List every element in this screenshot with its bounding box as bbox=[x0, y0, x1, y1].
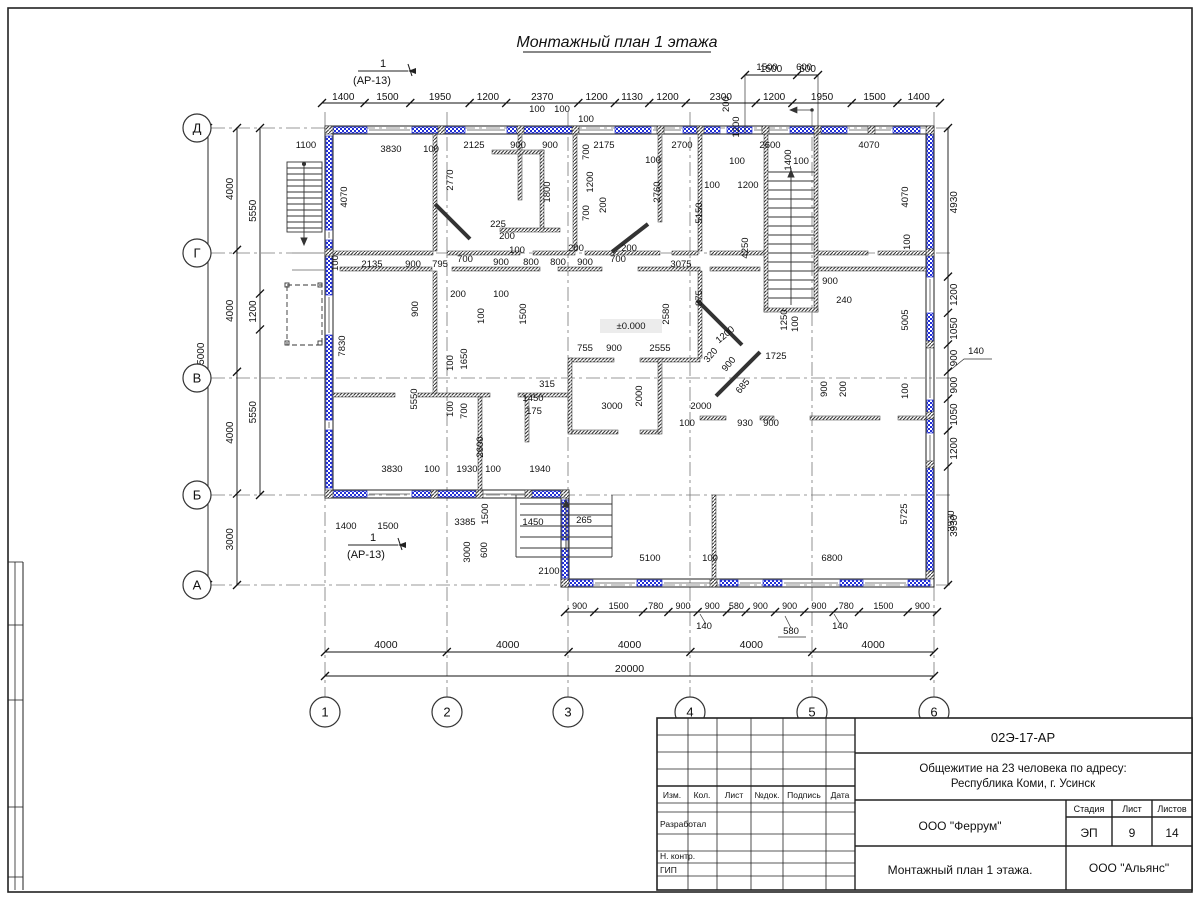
svg-text:200: 200 bbox=[621, 243, 637, 254]
svg-text:900: 900 bbox=[705, 601, 720, 611]
svg-text:1200: 1200 bbox=[763, 92, 786, 103]
svg-text:700: 700 bbox=[459, 403, 470, 419]
svg-text:2100: 2100 bbox=[538, 566, 559, 577]
svg-text:Г: Г bbox=[193, 246, 200, 261]
axis-bubbles: ДГВБА123456 bbox=[183, 114, 949, 727]
svg-text:1100: 1100 bbox=[296, 140, 316, 151]
svg-text:875: 875 bbox=[694, 290, 705, 306]
drawing-name: Монтажный план 1 этажа. bbox=[888, 863, 1033, 877]
tb-row-label: Разработал bbox=[660, 819, 706, 829]
svg-text:900: 900 bbox=[819, 381, 830, 397]
dimension-chains: 1400150019501200237012001130120023001200… bbox=[196, 64, 960, 680]
svg-text:4930: 4930 bbox=[949, 191, 960, 214]
svg-text:4000: 4000 bbox=[225, 299, 236, 322]
tb-col-header: Кол. bbox=[694, 790, 711, 800]
svg-text:1400: 1400 bbox=[332, 92, 355, 103]
svg-text:685: 685 bbox=[734, 377, 753, 396]
section-marker-top: 1 (АР-13) bbox=[353, 58, 416, 87]
svg-text:700: 700 bbox=[581, 144, 592, 160]
doc-number: 02Э-17-АР bbox=[991, 730, 1055, 745]
svg-text:100: 100 bbox=[645, 155, 661, 166]
svg-text:1500: 1500 bbox=[376, 92, 399, 103]
svg-text:900: 900 bbox=[822, 276, 838, 287]
svg-text:140: 140 bbox=[832, 621, 848, 632]
tb-col-header: №док. bbox=[755, 790, 780, 800]
svg-text:600: 600 bbox=[479, 542, 490, 558]
svg-text:1650: 1650 bbox=[459, 348, 470, 369]
drawing-sheet: 1 (АР-13) 1 (АР-13) 14001500195012002370… bbox=[0, 0, 1200, 900]
svg-text:3385: 3385 bbox=[454, 517, 475, 528]
sheets-label: Листов bbox=[1157, 804, 1186, 814]
svg-text:Д: Д bbox=[193, 121, 202, 136]
svg-text:580: 580 bbox=[783, 626, 799, 637]
tb-row-label: ГИП bbox=[660, 865, 677, 875]
svg-text:2600: 2600 bbox=[759, 140, 780, 151]
svg-text:100: 100 bbox=[578, 114, 594, 125]
svg-text:900: 900 bbox=[510, 140, 526, 151]
svg-text:900: 900 bbox=[493, 257, 509, 268]
svg-text:100: 100 bbox=[330, 255, 341, 271]
svg-text:175: 175 bbox=[526, 406, 542, 417]
svg-text:1500: 1500 bbox=[609, 601, 629, 611]
svg-text:200: 200 bbox=[499, 231, 515, 242]
svg-text:Б: Б bbox=[193, 488, 202, 503]
svg-text:100: 100 bbox=[793, 156, 809, 167]
svg-text:3830: 3830 bbox=[380, 144, 401, 155]
svg-text:100: 100 bbox=[554, 104, 570, 115]
svg-text:3830: 3830 bbox=[381, 464, 402, 475]
svg-text:320: 320 bbox=[702, 346, 721, 365]
svg-text:900: 900 bbox=[676, 601, 691, 611]
svg-text:4000: 4000 bbox=[740, 639, 764, 651]
stair-external-left bbox=[285, 162, 325, 345]
svg-text:700: 700 bbox=[610, 254, 626, 265]
svg-text:1500: 1500 bbox=[756, 62, 777, 73]
sheets-total: 14 bbox=[1165, 826, 1179, 840]
wall-panels bbox=[326, 127, 933, 586]
stair-main-right bbox=[768, 168, 814, 305]
svg-text:6800: 6800 bbox=[821, 553, 842, 564]
svg-text:2000: 2000 bbox=[634, 385, 645, 406]
svg-text:100: 100 bbox=[445, 355, 456, 371]
svg-text:780: 780 bbox=[839, 601, 854, 611]
diagonal-walls bbox=[435, 204, 760, 396]
svg-text:800: 800 bbox=[523, 257, 539, 268]
svg-text:4000: 4000 bbox=[374, 639, 398, 651]
svg-text:200: 200 bbox=[838, 381, 849, 397]
svg-text:В: В bbox=[193, 371, 202, 386]
svg-text:А: А bbox=[193, 578, 202, 593]
svg-text:755: 755 bbox=[577, 343, 593, 354]
svg-text:265: 265 bbox=[576, 515, 592, 526]
svg-text:100: 100 bbox=[679, 418, 695, 429]
contractor-org: ООО "Альянс" bbox=[1089, 861, 1169, 875]
svg-text:1200: 1200 bbox=[949, 283, 960, 306]
tb-col-header: Лист bbox=[725, 790, 744, 800]
svg-text:5005: 5005 bbox=[900, 309, 911, 330]
svg-text:1400: 1400 bbox=[335, 521, 356, 532]
tb-col-header: Изм. bbox=[663, 790, 681, 800]
designer-org: ООО "Феррум" bbox=[919, 819, 1002, 833]
svg-text:3000: 3000 bbox=[462, 541, 473, 562]
tb-row-label: Н. контр. bbox=[660, 851, 695, 861]
svg-text:2580: 2580 bbox=[661, 303, 672, 324]
svg-text:200: 200 bbox=[721, 96, 732, 112]
svg-text:100: 100 bbox=[900, 383, 911, 399]
svg-text:900: 900 bbox=[763, 418, 779, 429]
svg-text:100: 100 bbox=[790, 316, 801, 332]
svg-text:2: 2 bbox=[443, 705, 450, 720]
svg-text:1500: 1500 bbox=[518, 303, 529, 324]
page-title: Монтажный план 1 этажа bbox=[516, 34, 717, 51]
svg-text:2760: 2760 bbox=[652, 181, 663, 202]
svg-text:900: 900 bbox=[405, 259, 421, 270]
section-marker-bottom: 1 (АР-13) bbox=[347, 532, 406, 561]
svg-text:4070: 4070 bbox=[858, 140, 879, 151]
svg-text:900: 900 bbox=[782, 601, 797, 611]
tb-col-header: Подпись bbox=[787, 790, 821, 800]
svg-text:2770: 2770 bbox=[445, 169, 456, 190]
project-name-line1: Общежитие на 23 человека по адресу: bbox=[919, 763, 1126, 775]
project-name-line2: Республика Коми, г. Усинск bbox=[951, 778, 1096, 790]
svg-text:2600: 2600 bbox=[475, 436, 486, 457]
svg-text:200: 200 bbox=[568, 243, 584, 254]
tb-col-header: Дата bbox=[831, 790, 850, 800]
svg-text:1930: 1930 bbox=[456, 464, 477, 475]
svg-text:4000: 4000 bbox=[225, 421, 236, 444]
svg-text:900: 900 bbox=[572, 601, 587, 611]
svg-text:240: 240 bbox=[836, 295, 852, 306]
svg-text:315: 315 bbox=[539, 379, 555, 390]
svg-text:100: 100 bbox=[445, 401, 456, 417]
svg-text:1400: 1400 bbox=[908, 92, 931, 103]
svg-text:1200: 1200 bbox=[585, 92, 608, 103]
svg-text:1500: 1500 bbox=[480, 503, 491, 524]
svg-text:20000: 20000 bbox=[615, 663, 644, 675]
svg-text:1200: 1200 bbox=[731, 116, 742, 137]
svg-text:100: 100 bbox=[529, 104, 545, 115]
sheet-number: 9 bbox=[1129, 826, 1136, 840]
svg-text:1450: 1450 bbox=[522, 393, 543, 404]
svg-text:1400: 1400 bbox=[783, 149, 794, 170]
svg-text:4070: 4070 bbox=[900, 186, 911, 207]
svg-text:5100: 5100 bbox=[639, 553, 660, 564]
wall-piers bbox=[325, 126, 934, 587]
svg-text:1130: 1130 bbox=[621, 92, 643, 103]
svg-text:2700: 2700 bbox=[671, 140, 692, 151]
svg-text:7830: 7830 bbox=[337, 335, 348, 356]
svg-text:600: 600 bbox=[796, 62, 812, 73]
svg-text:1940: 1940 bbox=[529, 464, 550, 475]
svg-text:4250: 4250 bbox=[740, 237, 751, 258]
svg-text:900: 900 bbox=[720, 355, 739, 374]
svg-text:140: 140 bbox=[696, 621, 712, 632]
interior-walls bbox=[333, 134, 926, 579]
svg-text:1500: 1500 bbox=[377, 521, 398, 532]
svg-text:580: 580 bbox=[729, 601, 744, 611]
svg-text:1800: 1800 bbox=[542, 181, 553, 202]
svg-text:5550: 5550 bbox=[409, 388, 420, 409]
floor-plan-svg: 1 (АР-13) 1 (АР-13) 14001500195012002370… bbox=[0, 0, 1200, 900]
svg-text:2125: 2125 bbox=[463, 140, 484, 151]
stage-value: ЭП bbox=[1080, 826, 1097, 840]
section-ref: (АР-13) bbox=[353, 75, 391, 87]
svg-text:100: 100 bbox=[476, 308, 487, 324]
svg-text:800: 800 bbox=[550, 257, 566, 268]
sheet-label: Лист bbox=[1122, 804, 1142, 814]
section-number: 1 bbox=[380, 58, 386, 70]
svg-text:2000: 2000 bbox=[690, 401, 711, 412]
svg-text:900: 900 bbox=[410, 301, 421, 317]
svg-text:3000: 3000 bbox=[225, 528, 236, 551]
svg-text:200: 200 bbox=[450, 289, 466, 300]
svg-text:1725: 1725 bbox=[765, 351, 786, 362]
svg-text:900: 900 bbox=[577, 257, 593, 268]
svg-text:5725: 5725 bbox=[899, 503, 910, 524]
dimension-labels: 1500600200120010010010011003830100212590… bbox=[296, 62, 984, 637]
svg-text:3: 3 bbox=[564, 705, 571, 720]
svg-text:4070: 4070 bbox=[339, 186, 350, 207]
svg-text:3930: 3930 bbox=[946, 510, 957, 531]
svg-text:1250: 1250 bbox=[779, 309, 790, 330]
svg-text:900: 900 bbox=[949, 376, 960, 393]
walls bbox=[325, 126, 934, 587]
svg-text:100: 100 bbox=[509, 245, 525, 256]
svg-text:4000: 4000 bbox=[861, 639, 885, 651]
svg-text:100: 100 bbox=[423, 144, 439, 155]
svg-text:100: 100 bbox=[704, 180, 720, 191]
svg-text:1200: 1200 bbox=[737, 180, 758, 191]
svg-text:2370: 2370 bbox=[531, 92, 554, 103]
svg-text:1050: 1050 bbox=[949, 403, 960, 426]
svg-text:4000: 4000 bbox=[225, 177, 236, 200]
svg-text:100: 100 bbox=[493, 289, 509, 300]
svg-text:100: 100 bbox=[902, 234, 913, 250]
svg-text:5550: 5550 bbox=[248, 401, 259, 424]
svg-text:100: 100 bbox=[485, 464, 501, 475]
svg-text:900: 900 bbox=[542, 140, 558, 151]
svg-text:100: 100 bbox=[424, 464, 440, 475]
svg-text:100: 100 bbox=[702, 553, 718, 564]
stage-label: Стадия bbox=[1074, 804, 1105, 814]
svg-text:140: 140 bbox=[968, 346, 984, 357]
svg-text:1500: 1500 bbox=[863, 92, 886, 103]
svg-text:795: 795 bbox=[432, 259, 448, 270]
svg-text:1450: 1450 bbox=[522, 517, 543, 528]
svg-text:1500: 1500 bbox=[873, 601, 893, 611]
svg-text:225: 225 bbox=[490, 219, 506, 230]
svg-text:900: 900 bbox=[949, 349, 960, 366]
svg-text:2135: 2135 bbox=[361, 259, 382, 270]
svg-text:700: 700 bbox=[457, 254, 473, 265]
svg-text:930: 930 bbox=[737, 418, 753, 429]
svg-text:4000: 4000 bbox=[618, 639, 642, 651]
svg-text:3075: 3075 bbox=[670, 259, 691, 270]
svg-text:1200: 1200 bbox=[656, 92, 679, 103]
svg-text:1: 1 bbox=[321, 705, 328, 720]
svg-text:780: 780 bbox=[648, 601, 663, 611]
svg-text:1200: 1200 bbox=[477, 92, 500, 103]
svg-text:900: 900 bbox=[811, 601, 826, 611]
svg-text:700: 700 bbox=[581, 205, 592, 221]
title-block: Изм.Кол.Лист№док.ПодписьДата РазработалН… bbox=[657, 718, 1192, 890]
svg-text:900: 900 bbox=[915, 601, 930, 611]
svg-text:900: 900 bbox=[753, 601, 768, 611]
svg-text:4000: 4000 bbox=[496, 639, 520, 651]
svg-text:1950: 1950 bbox=[811, 92, 834, 103]
svg-text:100: 100 bbox=[729, 156, 745, 167]
svg-text:3000: 3000 bbox=[601, 401, 622, 412]
svg-text:1200: 1200 bbox=[248, 300, 259, 323]
svg-text:1050: 1050 bbox=[949, 317, 960, 340]
svg-text:5150: 5150 bbox=[694, 202, 705, 223]
svg-text:2175: 2175 bbox=[593, 140, 614, 151]
section-number: 1 bbox=[370, 532, 376, 544]
svg-text:5550: 5550 bbox=[248, 199, 259, 222]
svg-text:2555: 2555 bbox=[649, 343, 670, 354]
svg-text:900: 900 bbox=[606, 343, 622, 354]
svg-text:1200: 1200 bbox=[585, 171, 596, 192]
svg-text:1200: 1200 bbox=[949, 437, 960, 460]
svg-text:1950: 1950 bbox=[429, 92, 452, 103]
svg-text:1200: 1200 bbox=[714, 324, 737, 346]
svg-text:200: 200 bbox=[598, 197, 609, 213]
svg-text:±0.000: ±0.000 bbox=[617, 321, 646, 332]
section-ref: (АР-13) bbox=[347, 549, 385, 561]
